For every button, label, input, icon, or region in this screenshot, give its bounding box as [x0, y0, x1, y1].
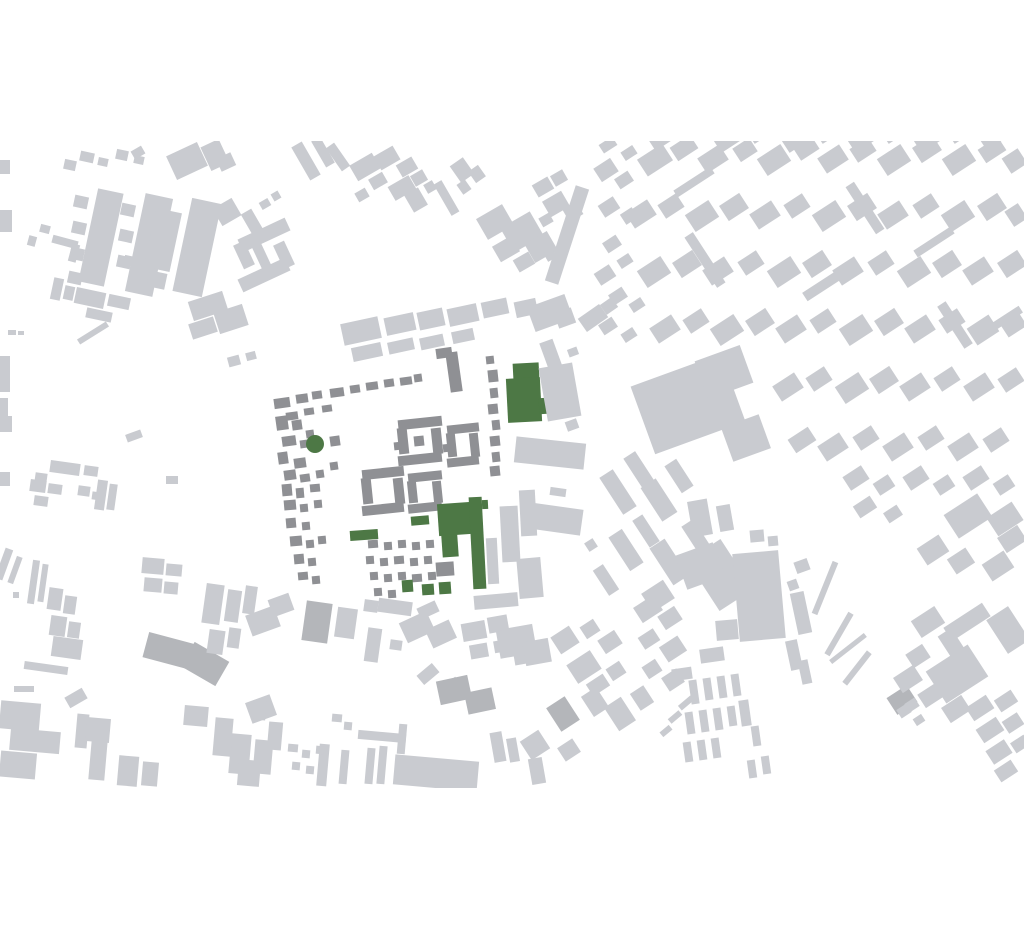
context-building	[143, 577, 162, 593]
site-building	[294, 554, 305, 565]
context-building	[49, 615, 68, 637]
context-building	[732, 550, 785, 642]
context-building	[334, 607, 358, 639]
site-building	[489, 388, 498, 399]
highlighted-building	[482, 500, 488, 509]
highlighted-building	[350, 529, 379, 541]
context-building	[9, 728, 61, 754]
site-building	[329, 435, 340, 446]
highlighted-building	[439, 582, 452, 595]
site-building	[295, 393, 308, 404]
context-building	[166, 563, 183, 576]
site-building	[488, 404, 499, 415]
context-building	[750, 529, 765, 542]
site-building	[281, 484, 292, 497]
site-building	[394, 442, 403, 451]
context-building	[0, 750, 37, 779]
site-building	[366, 381, 379, 391]
site-building	[384, 542, 393, 551]
site-building	[436, 561, 455, 576]
site-building	[312, 576, 321, 585]
site-building	[410, 558, 419, 567]
context-building	[141, 557, 164, 575]
site-building	[413, 373, 422, 382]
highlighted-building	[422, 584, 435, 596]
site-building	[318, 536, 327, 545]
site-building	[426, 540, 435, 549]
site-building	[306, 540, 315, 549]
context-building	[0, 700, 41, 731]
highlighted-building	[411, 515, 430, 526]
site-building	[277, 451, 289, 464]
context-building	[0, 416, 12, 432]
site-building	[368, 540, 379, 549]
figure-ground-map-page	[0, 0, 1024, 930]
context-building	[0, 398, 8, 418]
site-building	[314, 500, 323, 509]
site-building	[315, 469, 324, 478]
context-building	[292, 762, 301, 771]
context-building	[141, 761, 159, 786]
context-building	[237, 759, 261, 787]
site-building	[302, 522, 311, 531]
context-building	[8, 330, 16, 335]
site-building	[398, 572, 407, 581]
site-building	[311, 390, 322, 399]
context-building	[332, 714, 343, 723]
site-building	[428, 572, 437, 581]
site-building	[322, 404, 333, 412]
context-building	[0, 472, 10, 486]
site-building	[283, 469, 296, 481]
context-building	[389, 639, 402, 651]
context-building	[67, 621, 81, 639]
context-building	[306, 766, 315, 775]
site-building	[414, 436, 425, 447]
context-building	[500, 506, 521, 563]
map-background	[0, 0, 1024, 930]
context-building	[768, 536, 779, 547]
context-building	[267, 721, 283, 750]
site-building	[284, 499, 297, 510]
context-building	[77, 485, 90, 497]
site-building	[394, 556, 405, 565]
site-building	[490, 436, 501, 447]
context-building	[715, 619, 739, 641]
highlighted-building-circle	[306, 435, 324, 453]
site-building	[366, 556, 375, 565]
context-building	[83, 465, 98, 477]
context-building	[18, 331, 24, 335]
site-building	[388, 590, 397, 599]
context-building	[47, 483, 62, 495]
context-building	[212, 717, 233, 756]
site-building	[300, 504, 309, 513]
site-building	[443, 444, 452, 453]
context-building	[14, 686, 34, 692]
site-building	[286, 518, 297, 529]
context-building	[0, 210, 12, 232]
context-building	[344, 722, 353, 731]
highlighted-building	[506, 377, 542, 423]
site-building	[491, 420, 500, 431]
highlighted-building	[402, 580, 414, 593]
context-building	[0, 160, 10, 174]
site-building	[275, 415, 289, 431]
site-building	[491, 452, 500, 463]
context-building	[0, 356, 10, 392]
site-building	[374, 588, 383, 597]
site-building	[310, 484, 321, 493]
site-building	[281, 435, 296, 447]
site-building	[349, 384, 360, 393]
site-building	[487, 370, 498, 383]
context-building	[302, 750, 311, 759]
context-building	[29, 479, 47, 493]
site-building	[380, 558, 389, 567]
context-building	[519, 490, 537, 537]
context-building	[166, 476, 178, 484]
context-building	[164, 581, 179, 594]
context-building	[183, 705, 209, 727]
site-building	[412, 542, 421, 551]
site-building	[308, 558, 317, 567]
context-building	[85, 717, 111, 743]
context-building	[363, 599, 379, 613]
site-building	[329, 461, 338, 470]
context-building	[522, 638, 552, 666]
context-building	[33, 495, 48, 507]
context-building	[117, 755, 140, 787]
site-building	[490, 466, 501, 477]
site-building	[299, 473, 310, 482]
site-building	[383, 378, 394, 387]
site-building	[400, 376, 413, 386]
site-building	[370, 572, 379, 581]
context-building	[63, 595, 77, 614]
context-building	[316, 746, 325, 755]
context-building	[206, 629, 225, 655]
site-building	[398, 540, 407, 549]
site-building	[412, 574, 423, 583]
highlighted-building	[513, 362, 540, 379]
context-building	[13, 592, 19, 598]
context-building	[516, 557, 543, 599]
site-building	[298, 572, 309, 581]
highlighted-building	[437, 502, 473, 536]
site-building	[290, 535, 303, 546]
site-building	[384, 574, 393, 583]
context-building	[51, 636, 83, 660]
context-building	[253, 700, 267, 721]
site-building	[424, 556, 433, 565]
context-building	[288, 744, 299, 753]
highlighted-building	[441, 534, 458, 557]
map-canvas	[0, 0, 1024, 930]
site-building	[486, 356, 495, 365]
site-building	[296, 488, 305, 499]
site-building	[304, 407, 315, 415]
site-building	[293, 457, 306, 469]
site-building	[291, 419, 302, 430]
context-building-dark	[301, 600, 332, 643]
